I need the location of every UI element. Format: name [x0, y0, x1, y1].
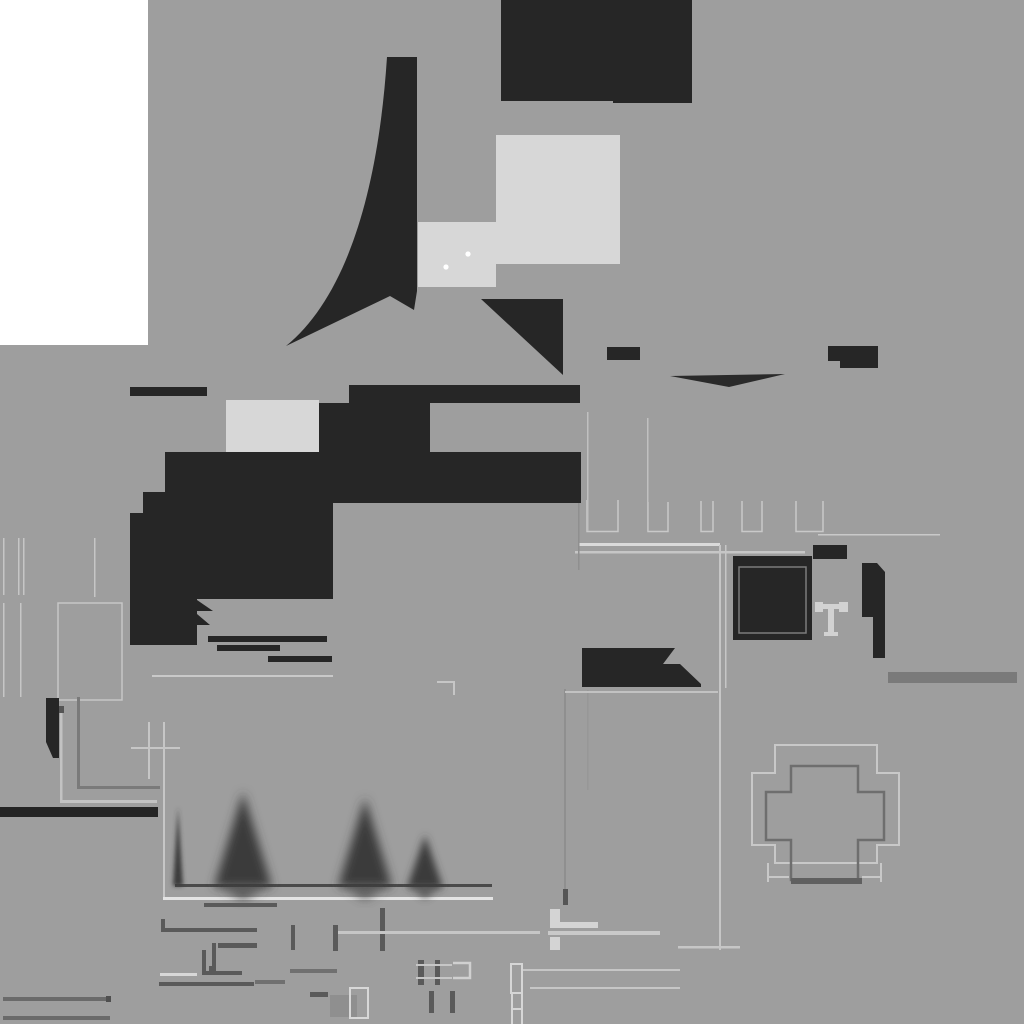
- black-bottom-bar: [0, 807, 158, 817]
- left-vline-b: [18, 538, 20, 595]
- cross-tick-v-left: [767, 863, 769, 882]
- cross-tick-v-right: [880, 863, 882, 882]
- cross-inner-bottom-bar: [791, 878, 862, 884]
- gray-L-v: [77, 697, 80, 788]
- ibeam-top-bar: [823, 604, 839, 609]
- circuit-vtick-291: [291, 925, 295, 950]
- circuit-L2-h: [202, 971, 242, 975]
- light-hline-946: [678, 946, 740, 949]
- light-block-small: [418, 222, 496, 287]
- light-block-large: [496, 135, 620, 264]
- circuit-line-159: [159, 982, 254, 986]
- circuit-hlight-964: [416, 964, 452, 966]
- top-black-rect-step: [613, 98, 692, 103]
- bottom-left-line-2: [3, 1016, 110, 1020]
- circuit-hlight-977: [416, 977, 452, 979]
- black-dash-left: [130, 387, 207, 396]
- circuit-vtick-450: [450, 991, 455, 1013]
- circuit-vtick-333: [333, 925, 338, 951]
- light-hline-544: [578, 543, 720, 546]
- light-hline-691: [565, 691, 718, 693]
- light-hline-987: [530, 987, 680, 989]
- white-sheet: [0, 0, 148, 345]
- bottom-left-line-1-tick: [106, 996, 111, 1002]
- light-vline-647: [647, 418, 649, 531]
- corner-mark-v: [453, 681, 455, 695]
- abstract-canvas: [0, 0, 1024, 1024]
- light-hline-969: [522, 969, 680, 971]
- circuit-vtick-429: [429, 991, 434, 1013]
- light-vline-587: [587, 412, 589, 531]
- light-L-tick: [59, 706, 64, 713]
- gray-vline-564-tip: [563, 889, 568, 905]
- small-black-bar: [607, 347, 640, 360]
- ibeam-top-left-sq: [815, 602, 823, 612]
- circuit-line-255: [255, 980, 285, 984]
- corner-mark-h: [437, 681, 455, 683]
- circuit-line-310: [310, 992, 328, 997]
- abstract-art-svg: [0, 0, 1024, 1024]
- circuit-v-212: [212, 943, 216, 970]
- top-black-rect: [501, 0, 692, 101]
- blob-top-bar: [349, 385, 580, 403]
- light-hline-552: [575, 551, 805, 554]
- circuit-bar-218: [218, 943, 257, 948]
- circuit-L1-h: [161, 928, 257, 932]
- left-vline-a: [3, 538, 5, 595]
- spike-panel-vline: [163, 722, 165, 900]
- spike-panel-bottom-line: [163, 897, 493, 900]
- circuit-vtick-418: [418, 960, 424, 985]
- gray-block-330: [330, 995, 357, 1017]
- plus-cross-h: [131, 747, 180, 749]
- under-panel-line: [204, 903, 277, 907]
- circuit-line-290: [290, 969, 337, 973]
- cross-tick-h-right: [862, 876, 881, 878]
- circuit-vtick-435: [435, 960, 440, 985]
- gray-vline-587b: [587, 690, 589, 790]
- white-dot-1: [465, 251, 470, 256]
- light-L-v: [60, 708, 63, 802]
- ibeam-stem: [828, 609, 834, 634]
- left-vline-f: [20, 603, 22, 697]
- blob-thin-bar-1: [208, 636, 327, 642]
- left-vline-e: [3, 603, 5, 697]
- blob-right-band: [430, 452, 581, 503]
- mid-gray-bar: [888, 672, 1017, 683]
- left-vline-d: [94, 538, 96, 597]
- gray-vline-578: [578, 503, 580, 570]
- ladder-rung: [511, 1008, 523, 1010]
- light-block-550b: [550, 937, 560, 950]
- light-L-h: [60, 800, 157, 803]
- light-block-mid: [226, 400, 319, 452]
- gray-vline-564: [564, 689, 566, 903]
- black-panel: [733, 556, 812, 640]
- plus-cross-v: [148, 722, 150, 779]
- circuit-light-160: [160, 973, 197, 976]
- ibeam-foot: [824, 632, 838, 636]
- light-vline-719: [719, 545, 721, 950]
- bottom-left-line-1: [3, 997, 111, 1001]
- blob-thin-bar-2: [217, 645, 280, 651]
- gray-L-h: [77, 786, 160, 789]
- cross-tick-h-left: [768, 876, 789, 878]
- circuit-vtick-380: [380, 908, 385, 951]
- light-hline-818: [818, 534, 940, 536]
- circuit-foot-209: [209, 966, 216, 971]
- light-hline-675: [152, 675, 333, 677]
- light-vline-725: [725, 545, 727, 688]
- blob-left-foot: [130, 513, 197, 645]
- light-hline-931: [338, 931, 540, 934]
- light-bar-550: [550, 922, 598, 928]
- white-dot-2: [443, 264, 448, 269]
- light-bar-548: [548, 931, 660, 935]
- black-tab-813: [813, 545, 847, 559]
- left-vline-c: [23, 538, 25, 595]
- blob-thin-bar-3: [268, 656, 332, 662]
- ibeam-top-right-sq: [839, 602, 848, 612]
